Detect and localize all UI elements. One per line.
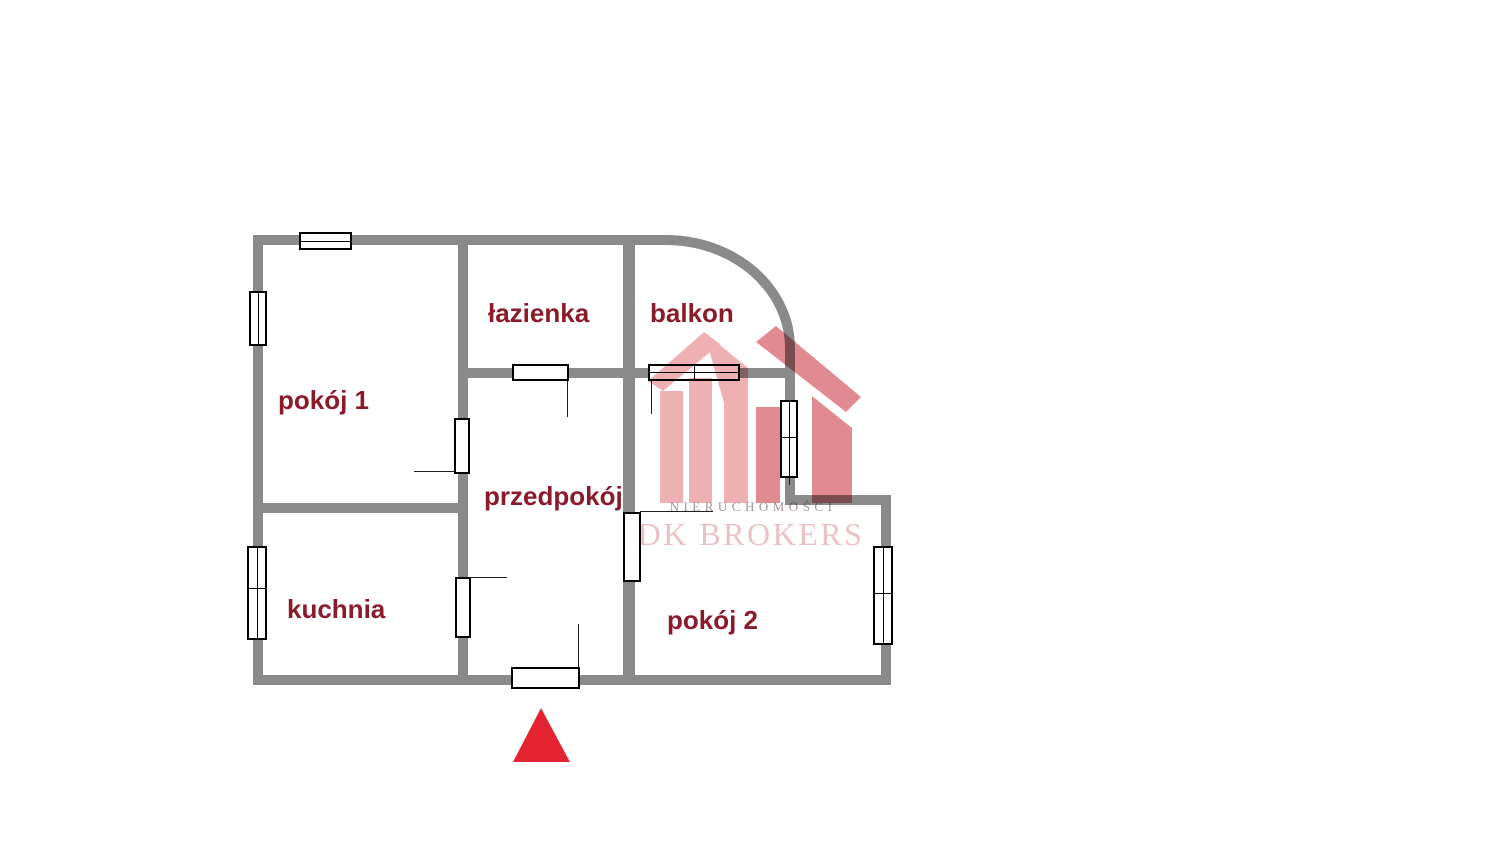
wall-center-upper bbox=[458, 235, 468, 418]
window-kuchnia-left-icon bbox=[247, 546, 267, 640]
balcony-arc-wall bbox=[0, 0, 1500, 848]
room-label-pokoj2: pokój 2 bbox=[667, 606, 758, 634]
balcony-curved-wall bbox=[666, 240, 790, 348]
window-pokoj2-right-icon bbox=[873, 546, 893, 645]
window-pokoj1-top-icon bbox=[299, 232, 352, 250]
door-entrance-icon bbox=[511, 667, 580, 689]
swing-kuchnia bbox=[469, 577, 507, 578]
room-label-przedpokoj: przedpokój bbox=[484, 482, 623, 510]
door-kuchnia-icon bbox=[455, 577, 471, 638]
room-label-kuchnia: kuchnia bbox=[287, 595, 385, 623]
window-balkon-side-icon bbox=[780, 400, 798, 478]
door-pokoj1-icon bbox=[454, 418, 470, 474]
wall-pokoj2-top bbox=[785, 495, 891, 505]
swing-entrance bbox=[578, 624, 579, 668]
room-label-balkon: balkon bbox=[650, 299, 734, 327]
room-label-pokoj1: pokój 1 bbox=[278, 386, 369, 414]
window-pokoj1-left-icon bbox=[249, 291, 267, 346]
swing-balkon-window-tick bbox=[789, 477, 790, 485]
swing-pokoj2 bbox=[640, 511, 713, 512]
window-balkon-double-icon bbox=[648, 364, 740, 381]
dk-brokers-watermark: NIERUCHOMOŚCI DK BROKERS bbox=[0, 0, 1500, 848]
floor-plan: pokój 1 łazienka balkon przedpokój kuchn… bbox=[0, 0, 1500, 848]
swing-lazienka bbox=[567, 381, 568, 417]
entrance-triangle-icon bbox=[513, 708, 570, 762]
wall-center-middle bbox=[458, 473, 468, 577]
door-pokoj2-icon bbox=[623, 512, 641, 582]
wall-center-lower bbox=[458, 637, 468, 685]
door-lazienka-icon bbox=[512, 364, 569, 381]
wall-przedpokoj-right-lower bbox=[623, 581, 635, 675]
swing-pokoj1 bbox=[414, 471, 455, 472]
wall-pokoj1-kuchnia bbox=[253, 503, 468, 513]
dk-brokers-house-logo-icon bbox=[648, 326, 861, 503]
room-label-lazienka: łazienka bbox=[488, 299, 589, 327]
swing-balkon bbox=[651, 381, 652, 414]
watermark-brand: DK BROKERS bbox=[638, 516, 865, 552]
